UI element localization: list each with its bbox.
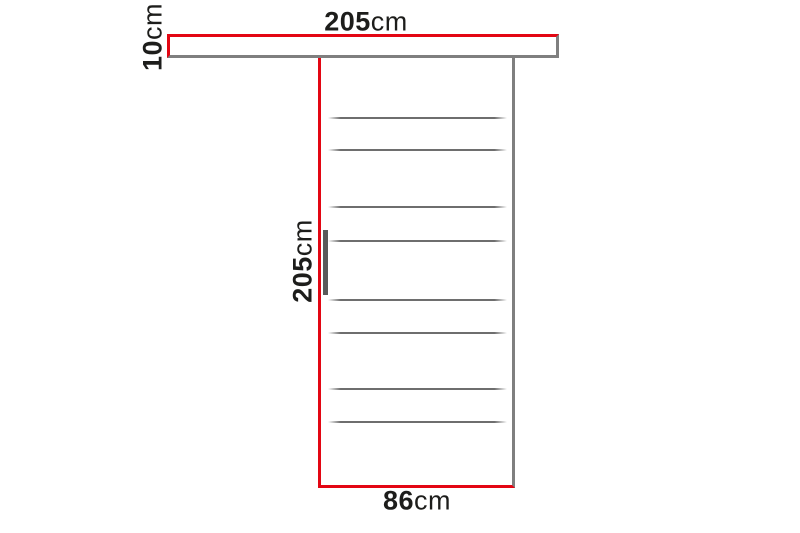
door-slat-line — [328, 117, 507, 119]
dimension-unit: cm — [138, 3, 168, 40]
door-slat-line — [328, 421, 507, 423]
top-rail — [167, 34, 559, 58]
door-slat-line — [328, 299, 507, 301]
dimension-unit: cm — [414, 486, 451, 516]
door-slat-line — [328, 332, 507, 334]
dimension-value: 205 — [324, 7, 371, 37]
door-slat-line — [328, 206, 507, 208]
door-slat-line — [328, 240, 507, 242]
dimension-value: 86 — [383, 486, 414, 516]
rail-width-label: 205cm — [324, 9, 408, 36]
dimension-unit: cm — [288, 219, 318, 256]
door-slat-line — [328, 149, 507, 151]
door-dimension-diagram: 205cm 10cm 205cm 86cm — [0, 0, 800, 533]
dimension-value: 205 — [288, 256, 318, 303]
door-width-label: 86cm — [383, 488, 451, 515]
dimension-unit: cm — [371, 7, 408, 37]
door-panel — [318, 58, 515, 488]
door-slat-line — [328, 388, 507, 390]
rail-height-label: 10cm — [140, 3, 167, 71]
door-height-label: 205cm — [290, 219, 317, 303]
dimension-value: 10 — [138, 40, 168, 71]
